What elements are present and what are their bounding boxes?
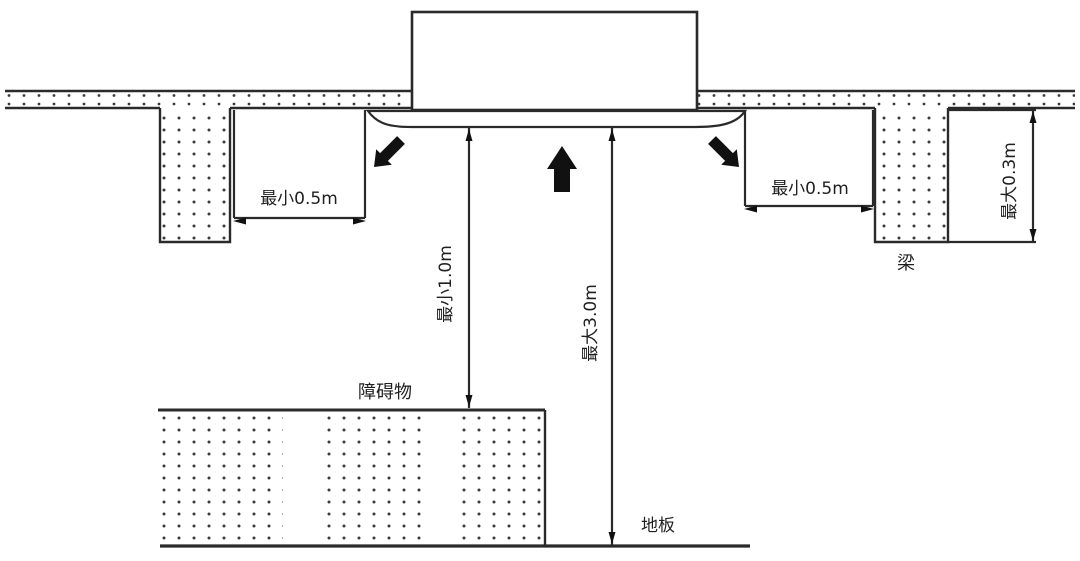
right-beam-hatch (876, 108, 947, 241)
airflow-down-left-icon (374, 136, 405, 167)
clearance-diagram-page: 梁 最小0.5m 最小0.5m 最大0.3m (0, 0, 1080, 561)
clearance-dimension-right: 最小0.5m (744, 110, 874, 213)
left-beam-hatch (161, 108, 229, 241)
obstacle: 障碍物 (158, 382, 545, 546)
beam-depth-lines (948, 110, 1036, 242)
obstacle-hatch (160, 411, 545, 545)
dimension-max-3m-label: 最大3.0m (581, 284, 601, 362)
clearance-dimension-left: 最小0.5m (233, 110, 366, 225)
dimension-min-1m: 最小1.0m (436, 128, 473, 408)
indoor-unit-body (412, 12, 697, 110)
obstacle-hatch-gap (283, 412, 323, 544)
airflow-up-icon (547, 146, 577, 192)
dim-arrow-down-icon (1030, 229, 1037, 241)
dim-arrow-up-icon (1030, 111, 1037, 123)
obstacle-hatch-gap (424, 412, 460, 544)
beam-depth-dimension: 最大0.3m (948, 110, 1037, 242)
obstacle-label: 障碍物 (358, 382, 412, 403)
clearance-diagram: 梁 最小0.5m 最小0.5m 最大0.3m (0, 0, 1080, 561)
clearance-left-label: 最小0.5m (260, 189, 338, 209)
floor-label: 地板 (641, 516, 675, 536)
dimension-min-1m-label: 最小1.0m (436, 245, 456, 323)
right-beam: 梁 (875, 108, 948, 274)
dim-arrow-down-icon (609, 532, 616, 544)
dim-arrow-down-icon (466, 395, 473, 407)
beam-label: 梁 (897, 253, 915, 274)
airflow-down-right-icon (708, 136, 739, 167)
left-beam (160, 108, 230, 242)
dim-arrow-up-icon (609, 129, 616, 141)
clearance-right-label: 最小0.5m (771, 179, 849, 199)
dim-arrow-up-icon (466, 129, 473, 141)
dimension-max-3m: 最大3.0m (581, 128, 616, 545)
beam-depth-label: 最大0.3m (1000, 142, 1020, 220)
unit-front-panel (368, 111, 745, 127)
